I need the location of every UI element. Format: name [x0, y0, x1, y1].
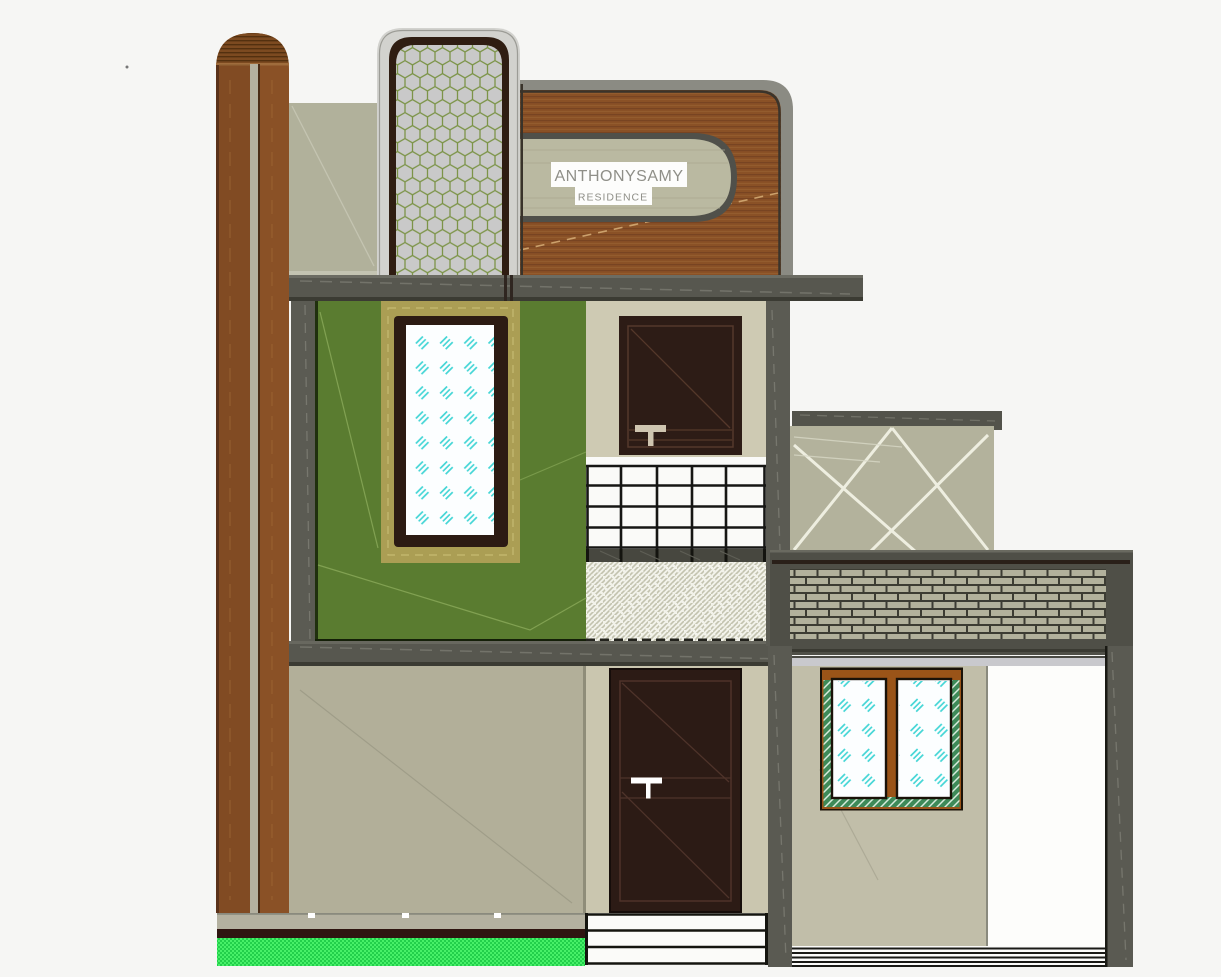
svg-text:RESIDENCE: RESIDENCE: [578, 192, 648, 204]
svg-text:ANTHONYSAMY: ANTHONYSAMY: [554, 168, 683, 185]
